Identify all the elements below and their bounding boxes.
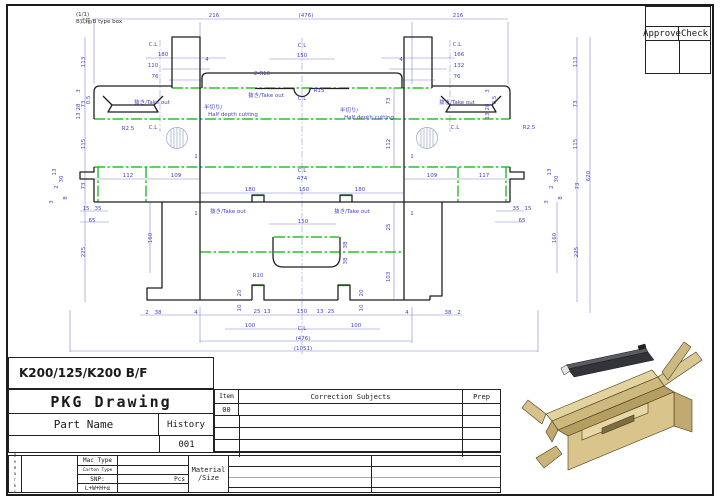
dim-label: 76 (152, 74, 159, 80)
centerlines (160, 38, 450, 354)
formula-label: L+W+H+α (78, 484, 118, 492)
dim-label: 110 (148, 63, 159, 69)
formula-value[interactable] (118, 484, 188, 492)
dim-label: 225 (574, 246, 580, 257)
dim-label: 4 (399, 57, 403, 63)
dim-label: 38 (155, 310, 162, 316)
approve-header: Approve (646, 27, 679, 40)
dim-label: 160 (552, 232, 558, 243)
correction-subjects-header: Correction Subjects (239, 390, 463, 403)
dim-label: 30 (59, 175, 65, 182)
dim-label: 抜き/Take out (334, 207, 371, 215)
dim-label: 150 (297, 309, 308, 315)
prep-header: Prep (463, 390, 500, 403)
dim-label: 474 (297, 176, 308, 182)
carton-type-value[interactable] (118, 466, 188, 475)
dim-label: 2 (54, 185, 60, 189)
dim-label: 112 (123, 173, 134, 179)
approval-block: Approve Check (645, 6, 711, 74)
dim-label: 113 (81, 56, 87, 67)
dim-label: 150 (299, 187, 310, 193)
dim-label: 15 (83, 206, 90, 212)
dim-label: 166 (454, 52, 465, 58)
die-mark-circle-left (167, 128, 188, 149)
dim-label: 抜き/Take out (210, 207, 247, 215)
bottom-panel (147, 202, 442, 300)
dim-label: C.L (451, 125, 461, 131)
dim-label: 180 (158, 52, 169, 58)
dim-label: R15 (314, 88, 325, 94)
drawing-sheet: (1/1)B式箱/B type box216(476)216C.L1801107… (0, 0, 720, 501)
mac-type-label: Mac Type (78, 456, 118, 465)
dim-label: 73 (575, 182, 581, 189)
dim-label: 1 (410, 154, 414, 160)
dim-label: 109 (171, 173, 182, 179)
dim-label: 73 (386, 97, 392, 104)
dim-label: 13 (547, 168, 553, 175)
snp-unit: Pcs (118, 475, 188, 483)
dim-label: 13 (76, 112, 82, 119)
product-3d-render (561, 344, 654, 377)
dim-label: 73 (81, 182, 87, 189)
dim-label: C.L (149, 42, 159, 48)
dim-label: 10 (237, 304, 243, 311)
correction-row-2[interactable] (240, 428, 463, 439)
dim-label: 25 (254, 309, 261, 315)
dim-label: (476) (299, 13, 314, 19)
part-name-value-cell[interactable] (9, 436, 160, 453)
dim-label: 76 (454, 74, 461, 80)
history-number: 001 (160, 436, 213, 453)
check-signature-cell[interactable] (680, 41, 710, 74)
dim-label: 150 (297, 53, 308, 59)
history-header: History (159, 414, 213, 435)
dim-label: 65 (89, 218, 96, 224)
snp-label: SNP: (78, 475, 118, 483)
dim-label: 65 (519, 218, 526, 224)
dim-label: 半切り/ (340, 106, 359, 114)
dim-label: 2 (145, 310, 149, 316)
dim-label: 20 (237, 289, 243, 296)
dim-label: (476) (296, 336, 311, 342)
dim-label: 3 (49, 200, 55, 204)
dim-label: R2.5 (122, 126, 135, 132)
dim-label: 113 (573, 56, 579, 67)
dim-label: 25 (328, 309, 335, 315)
dim-label: 35 (513, 206, 520, 212)
dim-label: 160 (148, 232, 154, 243)
dim-label: C.L (149, 125, 159, 131)
dim-label: 73 (81, 100, 87, 107)
dim-label: R10 (253, 273, 264, 279)
dim-label: 216 (209, 13, 220, 19)
dim-label: C.L (298, 168, 308, 174)
material-size-values[interactable] (229, 456, 500, 492)
dim-label: 112 (386, 139, 392, 150)
carton-type-label: Carton Type (78, 466, 118, 475)
dim-label: B式箱/B type box (76, 17, 123, 25)
dim-label: 103 (386, 271, 392, 282)
item-number: 00 (215, 404, 239, 415)
dim-label: 4 (205, 57, 209, 63)
part-name-header: Part Name (9, 414, 159, 435)
part-label: K200/125/K200 B/F (19, 366, 147, 380)
dim-label: 3 (544, 200, 550, 204)
dim-label: Half depth cutting (344, 115, 394, 121)
dim-label: C.L (298, 326, 308, 332)
dim-label: 4 (405, 310, 409, 316)
dim-label: 180 (245, 187, 256, 193)
dim-label: 4 (194, 310, 198, 316)
dim-label: 1 (194, 154, 198, 160)
check-header: Check (679, 27, 710, 40)
dim-label: 13 (52, 168, 58, 175)
dim-label: 2 (549, 185, 555, 189)
dim-label: 13 (264, 309, 271, 315)
approve-signature-cell[interactable] (646, 41, 680, 74)
dim-label: 100 (351, 323, 362, 329)
dim-label: 3 (76, 89, 82, 93)
dim-label: 30 (554, 175, 560, 182)
dim-label: 20 (359, 289, 365, 296)
mac-type-value[interactable] (118, 456, 188, 465)
dim-label: 1 (194, 211, 198, 217)
dim-label: (1/1) (76, 12, 89, 18)
item-header: Item (215, 390, 239, 403)
dim-label: R2.5 (523, 125, 536, 131)
dim-label: 半切り/ (204, 103, 223, 111)
correction-row-3[interactable] (240, 440, 463, 451)
remarks-strip: Remarks (9, 456, 22, 492)
dim-label: 620 (586, 170, 592, 181)
remarks-cell[interactable] (22, 456, 78, 492)
correction-table: Item Correction Subjects Prep 00 (214, 389, 501, 453)
dim-label: 132 (454, 63, 465, 69)
dim-label: 抜き/Take out (439, 98, 476, 106)
dim-label: 115 (573, 138, 579, 149)
dim-label: 117 (479, 173, 490, 179)
dim-label: 0.5 (492, 95, 498, 104)
dim-label: (1051) (294, 346, 312, 352)
material-size-label: Material/Size (189, 456, 229, 492)
dim-label: 38 (343, 257, 349, 264)
dim-label: 8 (63, 196, 69, 200)
dim-label: 3 (485, 89, 491, 93)
dim-label: 35 (95, 206, 102, 212)
die-mark-circle-right (417, 128, 438, 149)
dim-label: C.L (298, 43, 308, 49)
correction-row-1[interactable] (240, 416, 463, 427)
dim-label: C.L (453, 42, 463, 48)
dim-label: 2-R10 (254, 71, 271, 77)
dim-label: C.L (298, 96, 308, 102)
dim-label: 1 (410, 211, 414, 217)
dim-label: 8 (558, 196, 564, 200)
spec-block: Remarks Mac Type Carton Type SNP: Pcs L+… (8, 455, 501, 493)
dim-label: 180 (355, 187, 366, 193)
dim-label: 13 (485, 112, 491, 119)
prep-row-0[interactable] (463, 404, 500, 415)
dim-label: 216 (453, 13, 464, 19)
title-block: PKG Drawing Part Name History 001 (8, 389, 214, 453)
correction-row-0[interactable] (239, 404, 463, 415)
part-label-box: K200/125/K200 B/F (8, 357, 214, 389)
dim-label: 13 (317, 309, 324, 315)
dim-label: 25 (386, 223, 392, 230)
approval-blank-row (646, 7, 710, 27)
dim-label: 抜き/Take out (248, 91, 285, 99)
dim-label: 28 (485, 103, 491, 110)
dim-label: 38 (445, 310, 452, 316)
dim-label: 10 (359, 304, 365, 311)
dim-label: 15 (525, 206, 532, 212)
dim-label: 100 (245, 323, 256, 329)
drawing-title: PKG Drawing (9, 390, 213, 414)
dim-label: 抜き/Take out (134, 98, 171, 106)
dim-label: 2 (457, 310, 461, 316)
dim-label: 115 (81, 138, 87, 149)
dim-label: 225 (81, 246, 87, 257)
dim-label: 73 (573, 100, 579, 107)
dim-label: 38 (343, 241, 349, 248)
dim-label: 150 (298, 219, 309, 225)
dim-label: 109 (427, 173, 438, 179)
dim-label: Half depth cutting (208, 112, 258, 118)
